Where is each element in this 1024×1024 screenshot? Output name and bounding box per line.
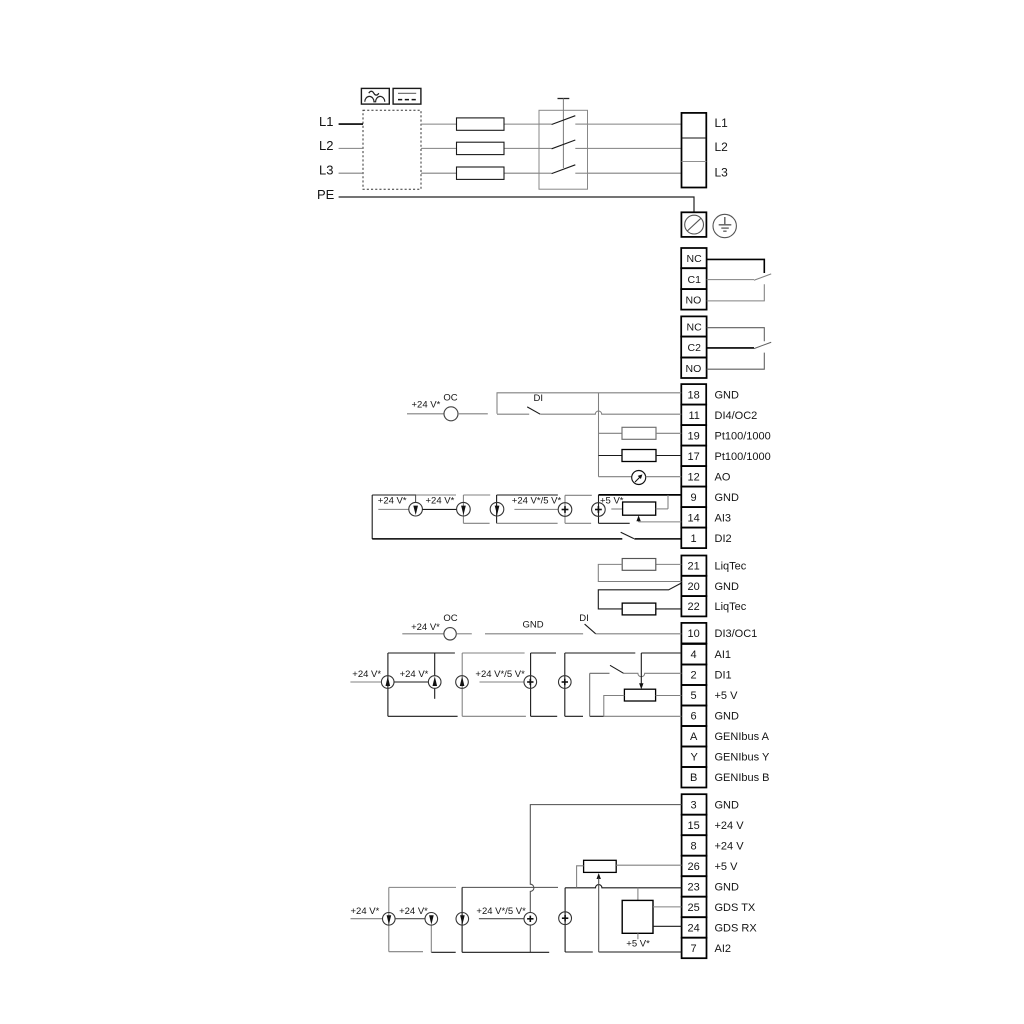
svg-text:18: 18: [688, 389, 700, 401]
svg-text:23: 23: [688, 881, 700, 893]
svg-text:+24 V*: +24 V*: [412, 400, 441, 411]
svg-text:DI2: DI2: [715, 533, 732, 545]
svg-text:+24 V*: +24 V*: [351, 906, 380, 917]
svg-text:NC: NC: [687, 253, 703, 265]
svg-text:+24 V*: +24 V*: [352, 669, 381, 680]
svg-text:26: 26: [688, 861, 700, 873]
svg-text:DI3/OC1: DI3/OC1: [715, 628, 758, 640]
svg-text:25: 25: [688, 902, 700, 914]
svg-text:24: 24: [688, 922, 700, 934]
svg-text:+24 V*: +24 V*: [378, 496, 407, 507]
svg-text:14: 14: [688, 512, 700, 524]
svg-text:Pt100/1000: Pt100/1000: [715, 430, 771, 442]
svg-text:17: 17: [688, 451, 700, 463]
svg-text:3: 3: [691, 799, 697, 811]
svg-text:B: B: [690, 772, 697, 784]
svg-text:GENIbus Y: GENIbus Y: [715, 752, 770, 764]
svg-text:OC: OC: [443, 613, 457, 624]
svg-text:GDS TX: GDS TX: [715, 902, 756, 914]
svg-text:+24 V*: +24 V*: [400, 669, 429, 680]
svg-text:11: 11: [689, 410, 700, 422]
svg-text:NC: NC: [687, 321, 703, 333]
svg-text:DI: DI: [579, 613, 589, 624]
svg-text:DI1: DI1: [715, 670, 732, 682]
svg-text:AI3: AI3: [715, 512, 732, 524]
svg-text:4: 4: [691, 649, 697, 661]
svg-text:5: 5: [691, 690, 697, 702]
svg-text:+24 V*: +24 V*: [411, 622, 440, 633]
svg-text:+24 V*/5 V*: +24 V*/5 V*: [476, 906, 526, 917]
svg-text:AI1: AI1: [715, 649, 732, 661]
svg-text:OC: OC: [443, 393, 457, 404]
svg-text:6: 6: [691, 711, 697, 723]
svg-text:LiqTec: LiqTec: [715, 561, 747, 573]
svg-text:+24 V: +24 V: [715, 820, 745, 832]
svg-text:+24 V*/5 V*: +24 V*/5 V*: [512, 496, 562, 507]
svg-text:L3: L3: [319, 163, 333, 178]
svg-text:L3: L3: [715, 165, 729, 179]
svg-text:L2: L2: [319, 138, 333, 153]
svg-text:GND: GND: [715, 799, 740, 811]
svg-text:GND: GND: [715, 711, 740, 723]
svg-text:GND: GND: [715, 389, 740, 401]
svg-text:GND: GND: [715, 581, 740, 593]
svg-text:A: A: [690, 731, 698, 743]
svg-text:+5 V*: +5 V*: [600, 496, 624, 507]
svg-text:GND: GND: [523, 620, 544, 631]
svg-text:L1: L1: [319, 114, 333, 129]
svg-text:AO: AO: [715, 471, 731, 483]
svg-text:2: 2: [691, 670, 697, 682]
svg-text:+24 V*: +24 V*: [399, 906, 428, 917]
svg-text:+5 V*: +5 V*: [626, 938, 650, 949]
svg-text:C2: C2: [688, 342, 702, 354]
svg-text:20: 20: [688, 581, 700, 593]
svg-text:19: 19: [688, 430, 700, 442]
svg-text:+5 V: +5 V: [715, 690, 739, 702]
svg-text:L1: L1: [715, 116, 729, 130]
svg-text:GENIbus A: GENIbus A: [715, 731, 770, 743]
svg-text:+24 V: +24 V: [715, 840, 745, 852]
svg-text:+24 V*: +24 V*: [426, 496, 455, 507]
svg-text:10: 10: [688, 628, 700, 640]
svg-text:NO: NO: [686, 294, 702, 306]
svg-text:DI: DI: [534, 393, 544, 404]
svg-text:8: 8: [691, 840, 697, 852]
svg-text:7: 7: [691, 943, 697, 955]
svg-text:LiqTec: LiqTec: [715, 601, 747, 613]
svg-text:Y: Y: [691, 752, 699, 764]
svg-text:L2: L2: [715, 140, 729, 154]
svg-text:AI2: AI2: [715, 943, 732, 955]
svg-text:22: 22: [688, 601, 700, 613]
svg-text:9: 9: [691, 492, 697, 504]
svg-text:+24 V*/5 V*: +24 V*/5 V*: [475, 669, 525, 680]
svg-text:Pt100/1000: Pt100/1000: [715, 451, 771, 463]
svg-text:GND: GND: [715, 881, 740, 893]
svg-text:PE: PE: [317, 187, 335, 202]
svg-text:NO: NO: [686, 363, 702, 375]
svg-text:21: 21: [688, 561, 700, 573]
svg-text:DI4/OC2: DI4/OC2: [715, 410, 758, 422]
svg-text:1: 1: [691, 533, 697, 545]
svg-text:+5 V: +5 V: [715, 861, 739, 873]
svg-text:GDS RX: GDS RX: [715, 922, 758, 934]
svg-text:12: 12: [688, 471, 700, 483]
svg-text:15: 15: [688, 820, 700, 832]
svg-text:C1: C1: [688, 274, 702, 286]
svg-text:GENIbus B: GENIbus B: [715, 772, 770, 784]
svg-text:GND: GND: [715, 492, 740, 504]
